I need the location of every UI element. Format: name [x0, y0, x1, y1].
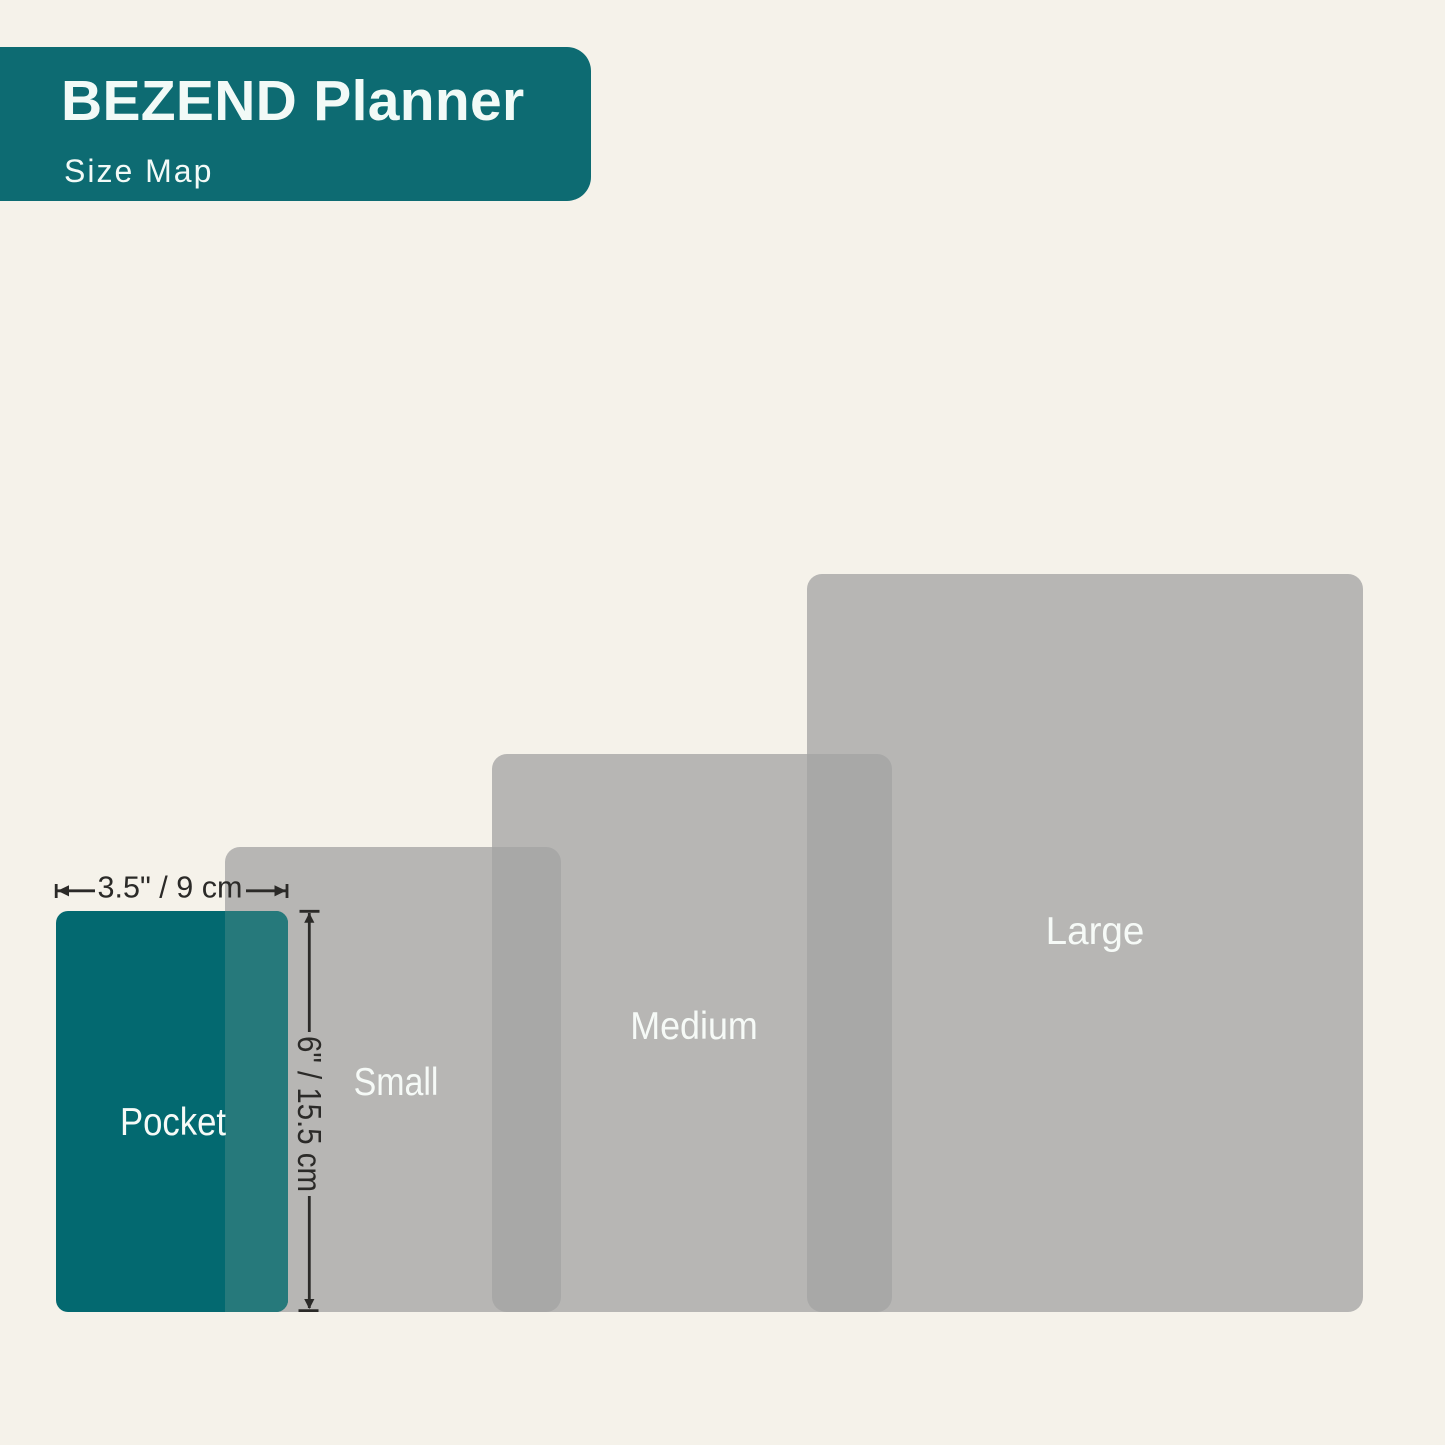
svg-text:6" / 15.5 cm: 6" / 15.5 cm [291, 1036, 328, 1192]
svg-text:3.5" / 9 cm: 3.5" / 9 cm [98, 870, 243, 905]
